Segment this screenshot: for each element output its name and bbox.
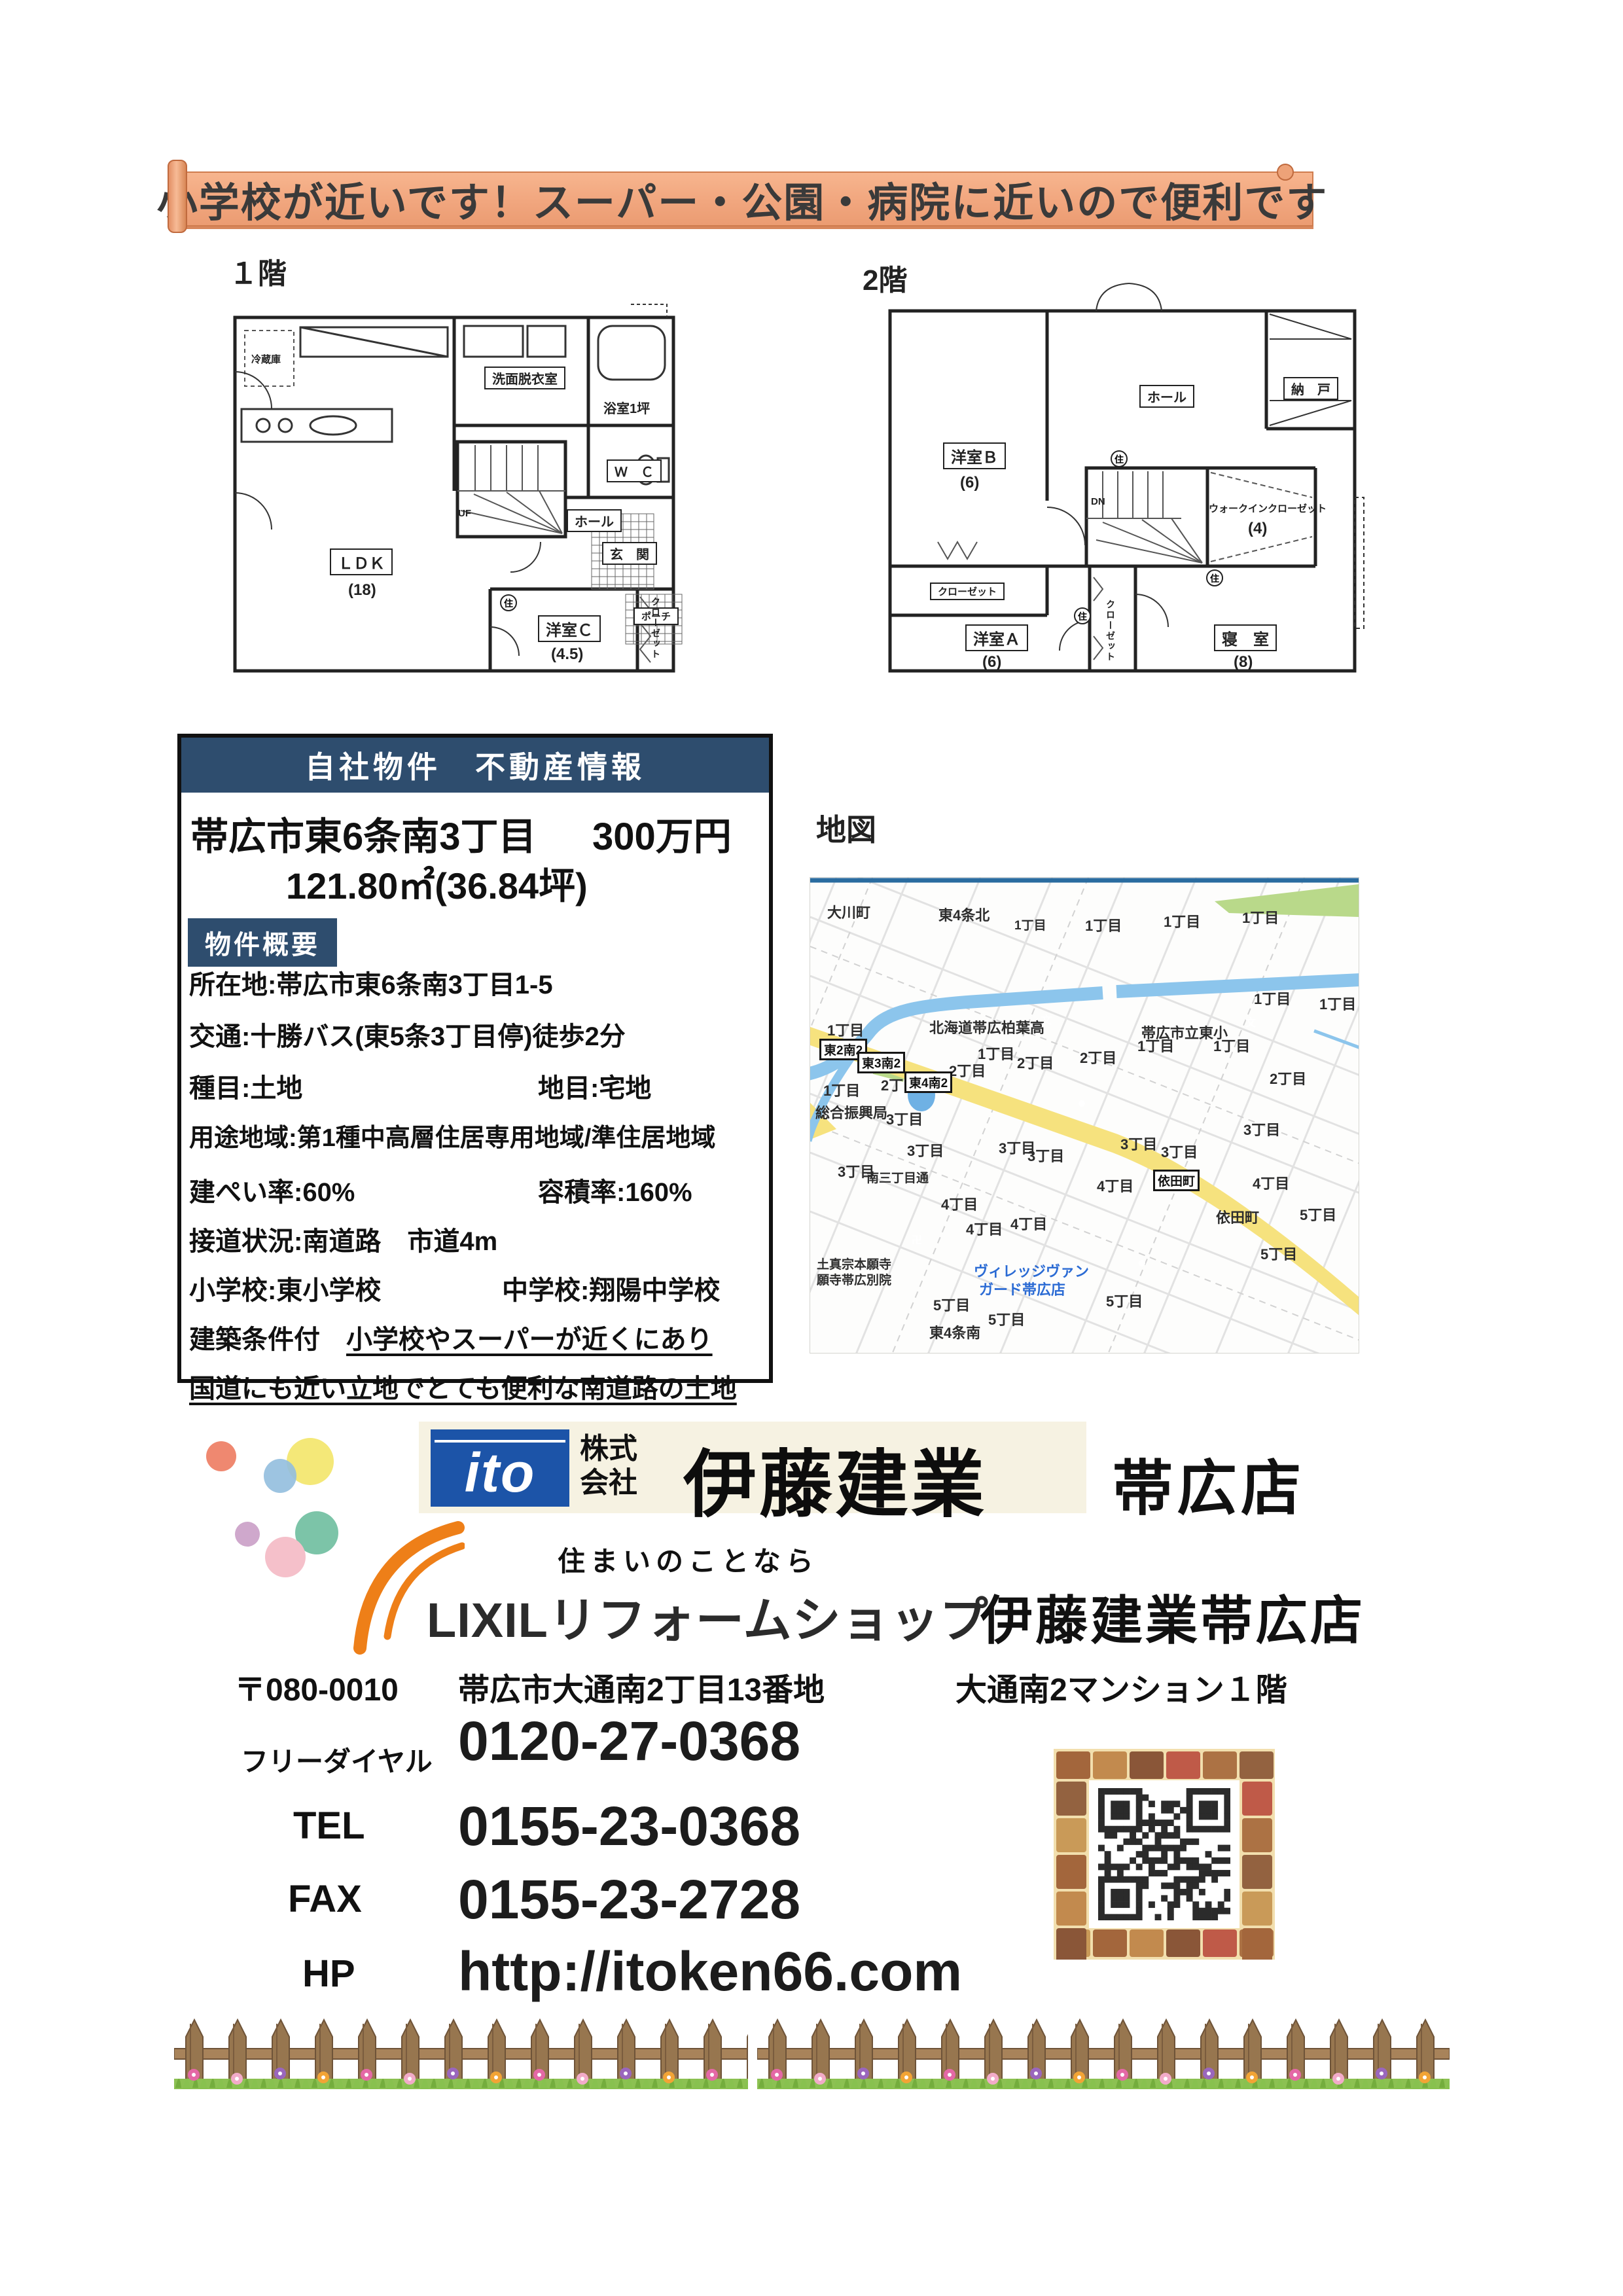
label: 東4条北 <box>938 904 990 925</box>
label: 総合振興局 <box>815 1102 887 1122</box>
kaisha: 会社 <box>580 1466 637 1500</box>
row-text-right: 容積率:160% <box>538 1171 692 1209</box>
tel-label: TEL <box>293 1804 365 1848</box>
label: 4丁目 <box>1010 1213 1047 1234</box>
property-row-transit: 交通:十勝バス(東5条3丁目停)徒歩2分 <box>189 1015 769 1054</box>
ribbon-curl-right <box>1277 164 1294 181</box>
label: ホール <box>567 509 622 532</box>
property-row-type: 種目:土地 地目:宅地 <box>189 1067 769 1106</box>
fax-number: 0155-23-2728 <box>458 1868 800 1931</box>
label: 玄 関 <box>602 542 657 565</box>
ito-logo: ito <box>431 1429 569 1507</box>
dot-icon <box>235 1522 260 1547</box>
label: 1丁目 <box>1085 914 1122 935</box>
label: (4) <box>1248 520 1267 538</box>
bus-stop-pin-icon <box>1071 1094 1093 1116</box>
label: 3丁目 <box>886 1108 923 1129</box>
dot-icon <box>265 1537 306 1577</box>
qr-code-block <box>1054 1749 1275 1960</box>
place-pin-icon <box>1293 1184 1315 1206</box>
row-text-underline: 国道にも近い立地でとても便利な南道路の土地 <box>189 1374 737 1403</box>
label: ガード帯広店 <box>979 1278 1065 1299</box>
lixil-logo-text: LIXILリフォームショップ <box>427 1581 989 1651</box>
headline-banner: 小学校が近いです！スーパー・公園・病院に近いので便利です <box>171 171 1313 226</box>
school-pin-icon: 文 <box>1035 1011 1058 1033</box>
floor1-label: １階 <box>229 250 287 292</box>
label: 東3南2 <box>857 1052 905 1073</box>
property-row-conditions: 建築条件付 小学校やスーパーが近くにあり <box>189 1318 769 1357</box>
label: 5丁目 <box>1106 1290 1143 1311</box>
label: 2丁目 <box>1080 1047 1116 1067</box>
label: 住 <box>1111 450 1128 467</box>
row-text-right: 中学校:翔陽中学校 <box>502 1269 720 1307</box>
ribbon-roll-left <box>168 160 187 233</box>
property-row-zoning: 用途地域:第1種中高層住居専用地域/準住居地域 <box>189 1117 769 1157</box>
property-title: 帯広市東6条南3丁目 <box>190 806 537 861</box>
label: 1丁目 <box>1164 910 1200 931</box>
school-pin-icon: 文 <box>1240 1014 1262 1036</box>
floorplan-1f: ＬＤＫ(18)洗面脱衣室浴室1坪Ｗ Ｃホール玄 関ポーチ洋室Ｃ(4.5)冷蔵庫U… <box>225 295 683 687</box>
label: 東4条南 <box>929 1321 980 1342</box>
label: 5丁目 <box>933 1294 970 1315</box>
label: 洋室Ｃ <box>538 615 601 642</box>
label: 3丁目 <box>1027 1145 1064 1166</box>
address-line1: 帯広市大通南2丁目13番地 <box>458 1664 825 1710</box>
label: 住 <box>1074 607 1091 624</box>
label: 5丁目 <box>1260 1243 1297 1264</box>
label: 5丁目 <box>988 1308 1025 1329</box>
label: 4丁目 <box>1253 1172 1289 1193</box>
row-text: 建ぺい率:60% <box>189 1178 355 1207</box>
label: 帯広市立東小 <box>1141 1022 1228 1043</box>
company-name: 伊藤建業 <box>683 1426 987 1532</box>
label: 北海道帯広柏葉高 <box>929 1016 1044 1037</box>
label: 土真宗本願寺 <box>817 1255 891 1272</box>
postal-code: 〒080-0010 <box>234 1664 399 1710</box>
row-text: 小学校:東小学校 <box>189 1276 381 1305</box>
label: 3丁目 <box>1120 1133 1157 1154</box>
fax-label: FAX <box>288 1877 362 1921</box>
tel-number: 0155-23-0368 <box>458 1795 800 1858</box>
label: 納 戸 <box>1283 377 1338 400</box>
freedial-label: フリーダイヤル <box>241 1740 433 1780</box>
freedial-number: 0120-27-0368 <box>458 1710 800 1773</box>
label: ホール <box>1139 385 1194 408</box>
fence-decoration-left <box>174 2015 748 2099</box>
label: 住 <box>1206 569 1223 586</box>
label: 1丁目 <box>1014 916 1046 933</box>
label: 1丁目 <box>1254 988 1291 1009</box>
label: 3丁目 <box>1243 1119 1280 1139</box>
property-header: 自社物件 不動産情報 <box>181 738 769 793</box>
label: Ｗ Ｃ <box>607 459 662 482</box>
temple-pin-icon: 卍 <box>906 1231 928 1253</box>
property-row-schools: 小学校:東小学校 中学校:翔陽中学校 <box>189 1269 769 1308</box>
label: 1丁目 <box>1319 993 1356 1014</box>
label: 1丁目 <box>1242 906 1279 927</box>
label: 3丁目 <box>1161 1141 1198 1162</box>
row-text-right: 地目:宅地 <box>538 1067 651 1105</box>
property-row-coverage: 建ぺい率:60% 容積率:160% <box>189 1171 769 1210</box>
label: 2丁目 <box>949 1060 986 1081</box>
label: (8) <box>1234 653 1253 672</box>
row-text: 建築条件付 <box>189 1325 346 1354</box>
row-text: 用途地域:第1種中高層住居専用地域/準住居地域 <box>189 1124 715 1152</box>
lixil-tagline: 住まいのことなら <box>558 1539 819 1579</box>
property-row-road: 接道状況:南道路 市道4m <box>189 1220 769 1259</box>
floorplan-1f-labels: ＬＤＫ(18)洗面脱衣室浴室1坪Ｗ Ｃホール玄 関ポーチ洋室Ｃ(4.5)冷蔵庫U… <box>225 295 683 687</box>
row-text-underline: 小学校やスーパーが近くにあり <box>346 1325 713 1354</box>
label: 願寺帯広別院 <box>817 1270 891 1288</box>
row-text: 所在地:帯広市東6条南3丁目1-5 <box>189 971 553 999</box>
location-pin-icon <box>1136 1082 1165 1112</box>
property-row-note: 国道にも近い立地でとても便利な南道路の土地 <box>189 1367 769 1407</box>
row-text: 交通:十勝バス(東5条3丁目停)徒歩2分 <box>189 1022 626 1051</box>
label: ＬＤＫ <box>330 548 393 575</box>
label: 洗面脱衣室 <box>484 367 565 389</box>
label: 寝 室 <box>1214 624 1277 651</box>
dot-icon <box>264 1459 296 1493</box>
label: 洋室Ａ <box>965 624 1028 651</box>
company-branch: 帯広店 <box>1113 1440 1305 1527</box>
label: 4丁目 <box>1097 1175 1133 1196</box>
label: 依田町 <box>1216 1206 1259 1227</box>
label: 冷蔵庫 <box>251 352 281 366</box>
label: 2丁目 <box>1017 1052 1054 1073</box>
row-text: 接道状況:南道路 市道4m <box>189 1227 497 1256</box>
label: 洋室Ｂ <box>943 442 1006 469</box>
map: 大川町東4条北1丁目1丁目1丁目1丁目1丁目1丁目1丁目1丁目北海道帯広柏葉高1… <box>810 877 1359 1354</box>
property-overview-badge: 物件概要 <box>188 918 337 967</box>
label: 2丁目 <box>1270 1067 1306 1088</box>
place-pin-icon <box>890 1085 912 1107</box>
label: 5丁目 <box>1300 1204 1336 1225</box>
label: クローゼット <box>930 583 1005 600</box>
property-area: 121.80㎡(36.84坪) <box>286 857 588 910</box>
label: 依田町 <box>1153 1170 1200 1191</box>
property-price: 300万円 <box>592 806 732 861</box>
headline-text: 小学校が近いです！スーパー・公園・病院に近いので便利です <box>157 170 1329 228</box>
label: 浴室1坪 <box>603 398 650 417</box>
address-line2: 大通南2マンション１階 <box>955 1664 1287 1710</box>
label: (4.5) <box>551 645 583 664</box>
floorplan-2f-labels: ホール納 戸洋室Ｂ(6)クローゼットウォークインクローゼット(4)洋室Ａ(6)寝… <box>880 281 1364 687</box>
label: 住 <box>500 594 517 611</box>
label: 大川町 <box>827 901 870 922</box>
kabushiki: 株式 <box>580 1432 637 1466</box>
store-pin-icon <box>1131 1253 1153 1276</box>
flyer-page: 小学校が近いです！スーパー・公園・病院に近いので便利です １階 <box>0 0 1623 2296</box>
qr-code-icon <box>1098 1788 1230 1920</box>
fence-decoration-right <box>757 2015 1450 2099</box>
property-info-box: 自社物件 不動産情報 帯広市東6条南3丁目 300万円 121.80㎡(36.8… <box>177 734 773 1383</box>
label: クローゼット <box>1104 600 1117 662</box>
label: (6) <box>982 653 1001 672</box>
label: 南三丁目通 <box>866 1168 929 1186</box>
company-kabushiki-kaisha: 株式 会社 <box>580 1432 637 1500</box>
label: DN <box>1091 496 1105 507</box>
label: (6) <box>960 474 979 492</box>
label: UF <box>458 508 471 519</box>
hp-label: HP <box>302 1952 355 1996</box>
map-labels: 大川町東4条北1丁目1丁目1丁目1丁目1丁目1丁目1丁目1丁目北海道帯広柏葉高1… <box>810 878 1359 1353</box>
property-header-text: 自社物件 不動産情報 <box>305 744 645 787</box>
floorplan-2f: ホール納 戸洋室Ｂ(6)クローゼットウォークインクローゼット(4)洋室Ａ(6)寝… <box>880 281 1364 687</box>
property-row-location: 所在地:帯広市東6条南3丁目1-5 <box>189 963 769 1003</box>
hp-url: http://itoken66.com <box>458 1940 962 2003</box>
dot-icon <box>206 1441 236 1471</box>
label: 1丁目 <box>823 1079 860 1100</box>
row-text: 種目:土地 <box>189 1074 302 1103</box>
ito-logo-text: ito <box>431 1441 569 1505</box>
map-title: 地図 <box>816 806 876 850</box>
label: クローゼット <box>649 597 662 660</box>
label: 4丁目 <box>966 1218 1003 1239</box>
label: 1丁目 <box>827 1019 864 1040</box>
label: ウォークインクローゼット <box>1209 501 1327 515</box>
label: 4丁目 <box>941 1193 978 1214</box>
label: (18) <box>348 581 376 600</box>
label: 3丁目 <box>907 1139 944 1160</box>
shop-name: 伊藤建業帯広店 <box>980 1579 1365 1655</box>
